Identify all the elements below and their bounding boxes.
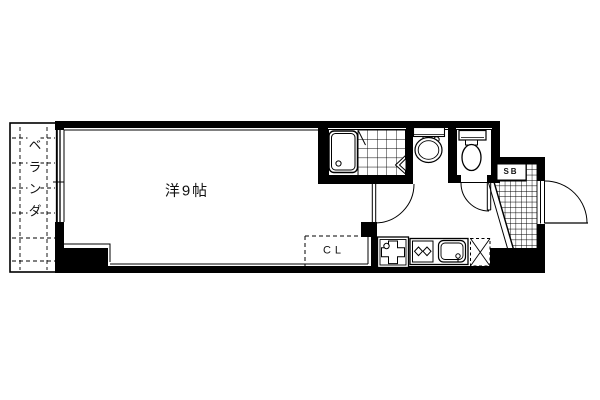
entry-door — [541, 181, 589, 224]
gas-stove — [413, 241, 434, 262]
floorplan-drawing — [0, 0, 600, 400]
toilet-door — [461, 183, 491, 211]
kitchen — [410, 239, 468, 265]
kitchen-sink — [439, 241, 466, 263]
washing-machine — [378, 237, 409, 268]
refrigerator-space — [471, 239, 491, 267]
closet-label: CL — [321, 245, 347, 258]
bathtub — [329, 131, 358, 173]
balcony-label: ベランダ — [28, 136, 41, 228]
shoebox-label: SB — [503, 168, 518, 176]
interior-door — [372, 184, 414, 223]
window — [53, 129, 64, 222]
toilet — [459, 131, 486, 171]
washbasin — [414, 128, 445, 163]
floorplan-page: { "labels": { "room": "洋9帖", "balcony": … — [0, 0, 600, 400]
bathroom — [329, 130, 406, 176]
room-label: 洋9帖 — [163, 183, 211, 200]
